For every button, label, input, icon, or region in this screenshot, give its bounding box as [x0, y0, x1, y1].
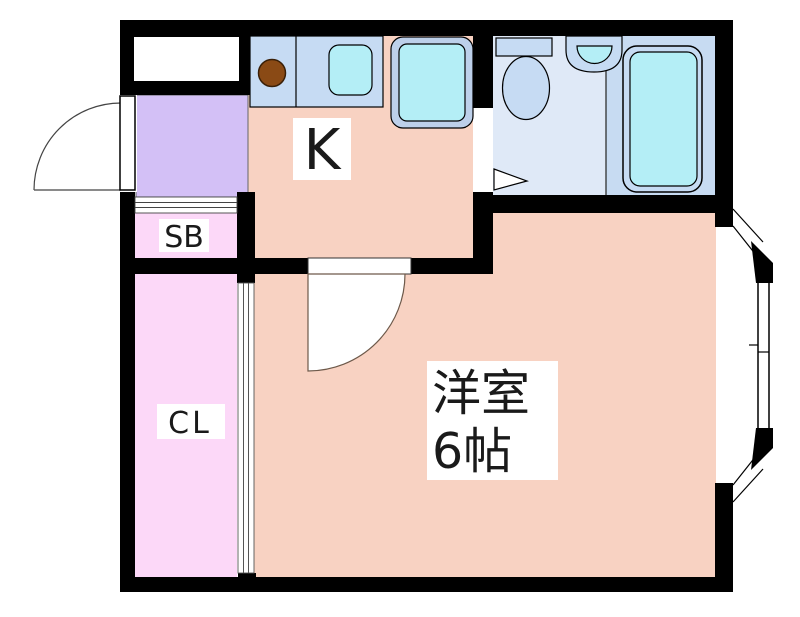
bay-window-bottom-frame	[751, 428, 773, 470]
floor-plan: K SB CL 洋室 6帖	[0, 0, 800, 617]
wall-bathroom-bottom	[473, 195, 733, 213]
wall-right-lower	[715, 483, 733, 592]
gas-burner-icon	[259, 60, 286, 87]
entry-meter-box-window	[134, 37, 239, 81]
shoe-box-label: SB	[164, 220, 204, 255]
bay-window	[733, 209, 773, 502]
entry-door-leaf	[120, 96, 135, 190]
main-room-size-label: 6帖	[432, 423, 512, 480]
wall-bottom	[120, 577, 733, 592]
closet-sliding-door-panel	[238, 283, 254, 573]
wall-closet-door-end-block	[238, 573, 256, 592]
closet-sliding-door	[238, 283, 254, 573]
bay-window-jamb-line	[733, 469, 763, 502]
entry-door-swing-arc	[34, 103, 121, 190]
closet-label: CL	[168, 406, 212, 441]
washing-machine-pan	[399, 44, 465, 121]
shoe-box-sliding-door	[135, 197, 237, 213]
main-room-name-label: 洋室	[432, 365, 530, 422]
wall-kitchen-bath-upper	[473, 36, 493, 108]
entry-door	[34, 95, 137, 192]
bay-window-jamb-line	[733, 209, 763, 242]
toilet-tank	[496, 38, 552, 56]
shoe-box-sliding-door-panel	[135, 197, 237, 213]
wall-top	[250, 20, 733, 36]
bay-window-top-frame	[751, 241, 773, 283]
room-door-opening	[308, 258, 411, 274]
wall-kitchen-bottom	[120, 258, 493, 274]
kitchen-label: K	[304, 118, 342, 183]
kitchen-sink	[329, 45, 372, 95]
entry-genkan-floor	[136, 95, 248, 197]
toilet-bowl	[503, 57, 550, 120]
bathtub-inner	[630, 52, 697, 186]
wall-left	[120, 192, 135, 587]
bathroom-door-opening	[474, 108, 493, 192]
floor-plan-svg: K SB CL 洋室 6帖	[0, 0, 800, 617]
